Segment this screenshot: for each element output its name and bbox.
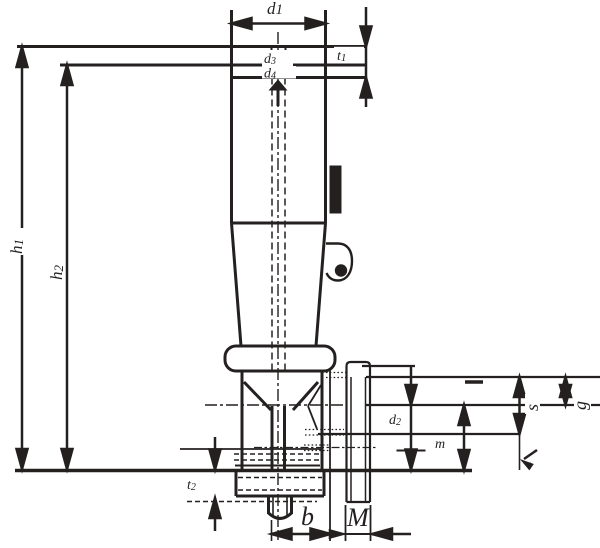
svg-text:h1: h1 (7, 239, 26, 254)
svg-text:M: M (346, 503, 370, 532)
svg-text:h2: h2 (47, 265, 66, 281)
svg-text:t1: t1 (337, 49, 346, 64)
svg-text:s: s (522, 404, 542, 411)
svg-text:d1: d1 (267, 0, 283, 18)
svg-text:m: m (435, 437, 445, 452)
svg-text:b: b (301, 502, 314, 531)
svg-text:g: g (570, 401, 590, 410)
